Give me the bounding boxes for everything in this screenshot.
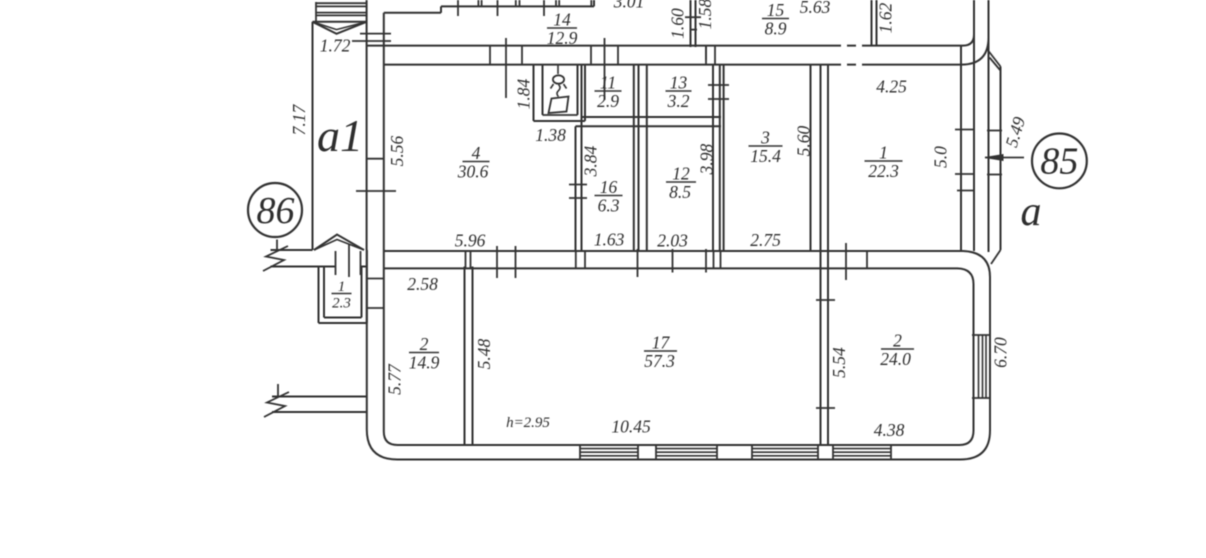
svg-text:1.63: 1.63 bbox=[594, 230, 625, 250]
svg-text:14.9: 14.9 bbox=[409, 352, 440, 372]
svg-text:86: 86 bbox=[257, 190, 295, 232]
svg-text:3: 3 bbox=[760, 128, 770, 148]
svg-text:6.3: 6.3 bbox=[598, 195, 620, 215]
svg-text:30.6: 30.6 bbox=[457, 161, 489, 181]
svg-text:1.84: 1.84 bbox=[514, 78, 534, 109]
svg-text:2.03: 2.03 bbox=[657, 231, 688, 251]
svg-text:5.56: 5.56 bbox=[387, 135, 407, 166]
svg-text:2.3: 2.3 bbox=[332, 295, 351, 311]
svg-text:5.77: 5.77 bbox=[385, 363, 405, 395]
svg-text:1.58: 1.58 bbox=[695, 0, 715, 29]
svg-text:4.25: 4.25 bbox=[876, 77, 907, 97]
svg-text:12.9: 12.9 bbox=[547, 28, 578, 48]
svg-text:8.9: 8.9 bbox=[765, 18, 787, 38]
svg-text:5.0: 5.0 bbox=[931, 146, 951, 168]
svg-text:11: 11 bbox=[600, 73, 616, 93]
svg-text:17: 17 bbox=[652, 333, 671, 353]
svg-text:14: 14 bbox=[553, 10, 571, 30]
svg-text:7.17: 7.17 bbox=[289, 103, 309, 135]
svg-text:6.70: 6.70 bbox=[991, 337, 1011, 368]
svg-text:15: 15 bbox=[767, 0, 785, 20]
svg-text:5.54: 5.54 bbox=[829, 347, 849, 378]
svg-text:22.3: 22.3 bbox=[868, 161, 899, 181]
svg-text:3.01: 3.01 bbox=[613, 0, 645, 12]
svg-text:15.4: 15.4 bbox=[750, 146, 781, 166]
svg-text:1: 1 bbox=[338, 279, 346, 295]
svg-text:85: 85 bbox=[1040, 141, 1078, 183]
svg-text:3.98: 3.98 bbox=[697, 143, 717, 175]
svg-text:2: 2 bbox=[893, 331, 902, 351]
svg-text:2.9: 2.9 bbox=[597, 91, 619, 111]
svg-text:1.60: 1.60 bbox=[668, 8, 688, 39]
svg-text:16: 16 bbox=[600, 177, 618, 197]
svg-text:5.63: 5.63 bbox=[800, 0, 831, 17]
svg-text:4: 4 bbox=[472, 143, 481, 163]
svg-text:h=2.95: h=2.95 bbox=[506, 415, 550, 431]
svg-text:1: 1 bbox=[879, 143, 888, 163]
svg-text:a: a bbox=[1021, 189, 1042, 235]
svg-text:57.3: 57.3 bbox=[644, 351, 675, 371]
svg-text:1.38: 1.38 bbox=[535, 125, 566, 145]
svg-text:3.84: 3.84 bbox=[581, 145, 601, 177]
svg-text:1.72: 1.72 bbox=[320, 36, 351, 56]
svg-text:2.58: 2.58 bbox=[407, 274, 438, 294]
svg-text:4.38: 4.38 bbox=[874, 420, 905, 440]
svg-text:12: 12 bbox=[672, 164, 690, 184]
svg-text:24.0: 24.0 bbox=[880, 349, 911, 369]
svg-text:5.60: 5.60 bbox=[794, 125, 814, 156]
svg-text:1.62: 1.62 bbox=[876, 2, 896, 33]
svg-text:2: 2 bbox=[420, 334, 429, 354]
svg-text:2.75: 2.75 bbox=[750, 230, 781, 250]
svg-text:5.96: 5.96 bbox=[455, 231, 486, 251]
svg-text:13: 13 bbox=[670, 73, 688, 93]
svg-text:5.48: 5.48 bbox=[474, 338, 494, 369]
svg-text:10.45: 10.45 bbox=[611, 417, 651, 437]
svg-text:8.5: 8.5 bbox=[669, 182, 691, 202]
svg-text:3.2: 3.2 bbox=[667, 91, 690, 111]
svg-text:a1: a1 bbox=[317, 110, 363, 161]
